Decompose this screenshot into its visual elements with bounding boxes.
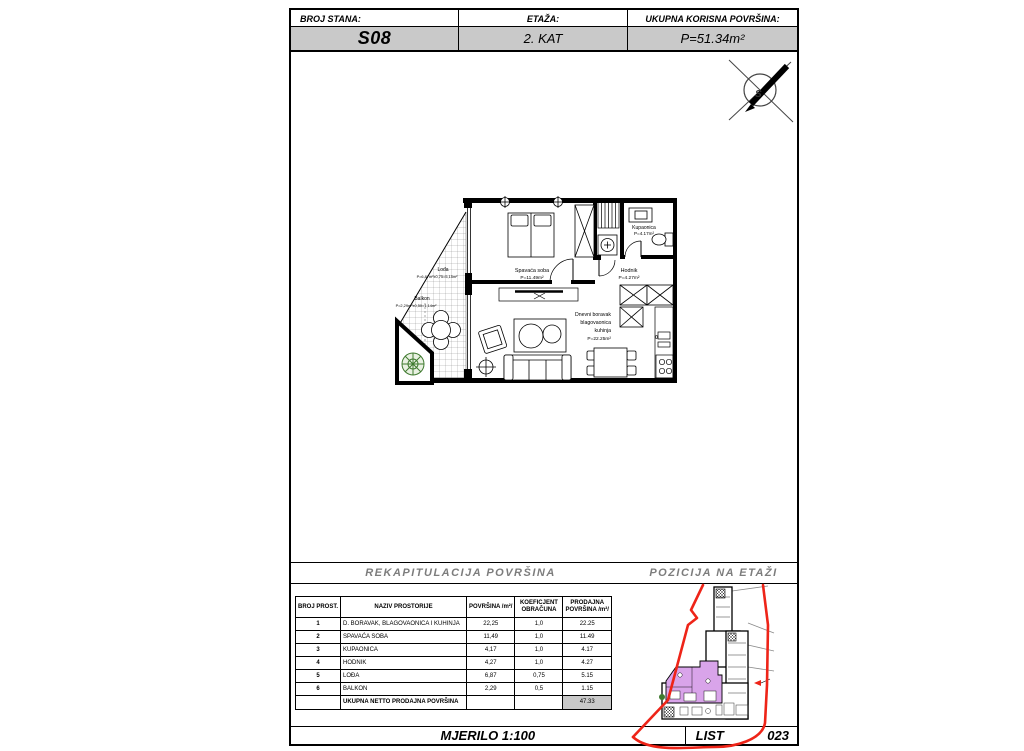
mjerilo: MJERILO 1:100 [291, 727, 686, 744]
rekapitulacija-table: BROJ PROST. NAZIV PROSTORIJE POVRŠINA /m… [295, 596, 612, 710]
table-total-row: UKUPNA NETTO PRODAJNA POVRŠINA 47.33 [296, 696, 612, 710]
coffee-table [514, 319, 566, 352]
label-dnevni-1: Dnevni boravak [575, 312, 611, 318]
apartment-highlight [666, 661, 722, 703]
th-povrsina: POVRŠINA /m²/ [467, 597, 515, 618]
label-balkon: Balkon [414, 296, 430, 302]
site-boundary [633, 585, 768, 748]
building-footprint [662, 587, 748, 719]
ukupna-value: P=51.34m² [628, 27, 797, 50]
north-letter: S [755, 89, 762, 100]
label-hodnik-area: P=4.27m² [619, 275, 640, 281]
plant-dot [659, 694, 665, 700]
label-spavaca-area: P=11.49m² [520, 275, 544, 281]
sofa [504, 355, 571, 380]
floor-plan: Spavaća soba P=11.49m² Kupaonica P=4.17m… [385, 185, 705, 400]
broj-stana-label: BROJ STANA: [291, 10, 459, 26]
section-band: REKAPITULACIJA POVRŠINA POZICIJA NA ETAŽ… [291, 562, 797, 584]
north-arrow-icon: S [715, 48, 805, 132]
table-row: 1D. BORAVAK, BLAGOVAONICA I KUHINJA 22,2… [296, 618, 612, 631]
plant [402, 353, 424, 375]
label-loda: Lođa [437, 267, 448, 273]
armchair [478, 325, 507, 354]
etaza-label: ETAŽA: [459, 10, 628, 26]
label-kupaonica-area: P=4.17m² [634, 231, 655, 236]
page: BROJ STANA: ETAŽA: UKUPNA KORISNA POVRŠI… [0, 0, 1024, 751]
label-balkon-area: P=2,29m²x0,50=1,14m² [396, 303, 438, 308]
table-row: 5LOĐA 6,870,75 5.15 [296, 670, 612, 683]
list-label: LIST [696, 728, 724, 743]
table-row: 4HODNIK 4,271,0 4.27 [296, 657, 612, 670]
label-loda-area: P=6,87m²x0,75=5,15m² [417, 274, 459, 279]
kitchen-counter [655, 307, 673, 378]
dining-set [587, 348, 636, 377]
broj-stana-value: S08 [291, 27, 459, 50]
total-label: UKUPNA NETTO PRODAJNA POVRŠINA [341, 696, 467, 710]
etaza-value: 2. KAT [459, 27, 628, 50]
table-row: 3KUPAONICA 4,171,0 4.17 [296, 644, 612, 657]
title-block-labels: BROJ STANA: ETAŽA: UKUPNA KORISNA POVRŠI… [291, 10, 797, 26]
th-naziv: NAZIV PROSTORIJE [341, 597, 467, 618]
floor-lamp [476, 357, 496, 377]
wall-top [463, 198, 677, 203]
label-dnevni-3: kuhinja [595, 328, 612, 334]
label-dnevni-area: P=22.25m² [587, 336, 611, 342]
drawing-sheet-frame: BROJ STANA: ETAŽA: UKUPNA KORISNA POVRŠI… [289, 8, 799, 746]
label-hodnik: Hodnik [621, 268, 638, 274]
wardrobe [575, 205, 594, 257]
th-broj: BROJ PROST. [296, 597, 341, 618]
entrance-arrow [754, 680, 761, 686]
staircase [598, 200, 619, 228]
footer-band: MJERILO 1:100 LIST 023 [291, 726, 797, 744]
position-diagram [620, 583, 798, 749]
rekapitulacija-title: REKAPITULACIJA POVRŠINA [291, 563, 630, 583]
list-value: 023 [767, 728, 789, 743]
bathroom-sink [629, 208, 652, 222]
washing-machine [598, 235, 617, 255]
tv-console [499, 288, 578, 301]
th-prodajna: PRODAJNAPOVRŠINA /m²/ [563, 597, 611, 618]
list-cell: LIST 023 [686, 727, 797, 744]
bed [508, 213, 554, 257]
table-row: 6BALKON 2,290,5 1.15 [296, 683, 612, 696]
pozicija-title: POZICIJA NA ETAŽI [630, 563, 797, 583]
label-dnevni-2: blagovaonica [580, 320, 611, 326]
wall-right [673, 198, 677, 383]
toilet [652, 233, 673, 246]
total-value: 47.33 [563, 696, 611, 710]
ukupna-label: UKUPNA KORISNA POVRŠINA: [628, 10, 797, 26]
table-row: 2SPAVAĆA SOBA 11,491,0 11.49 [296, 631, 612, 644]
th-koef: KOEFICJENTOBRAČUNA [515, 597, 563, 618]
kitchen-cabinets [620, 285, 673, 327]
label-spavaca: Spavaća soba [515, 268, 549, 274]
